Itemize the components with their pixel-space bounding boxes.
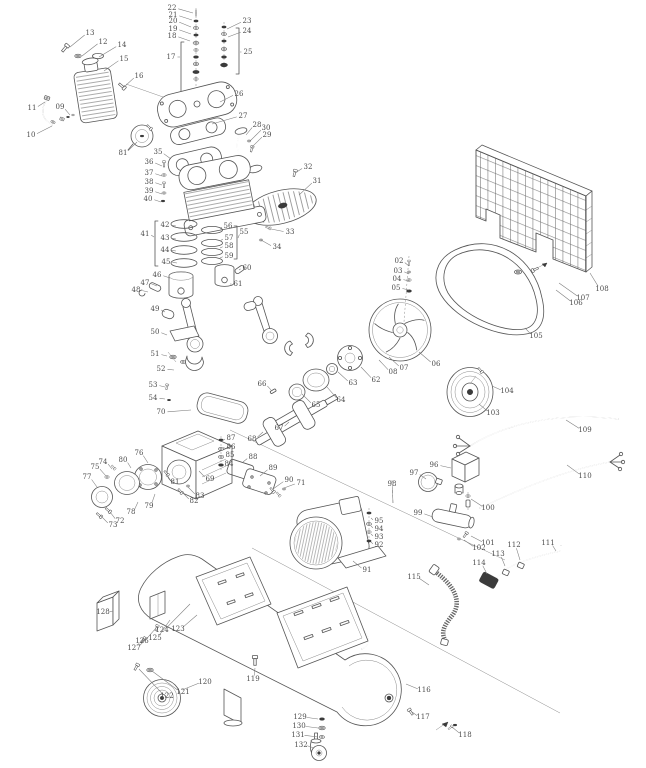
part-number-114: 114: [472, 559, 486, 567]
part-number-50: 50: [151, 328, 160, 336]
part-number-10: 10: [27, 131, 36, 139]
part-number-90: 90: [285, 476, 294, 484]
leader-line-05: [402, 289, 409, 291]
leader-line-77: [92, 480, 97, 488]
part-number-75: 75: [91, 463, 100, 471]
part-number-24: 24: [243, 27, 252, 35]
part-number-03: 03: [394, 267, 403, 275]
pressure-gauge: [419, 473, 443, 492]
leader-line-74: [108, 464, 112, 469]
leader-line-93: [371, 534, 373, 536]
part-number-96: 96: [430, 461, 439, 469]
leader-line-76: [143, 456, 148, 463]
piston-1: [169, 272, 193, 298]
part-number-100: 100: [481, 504, 494, 512]
piston-rings-1: [171, 220, 197, 268]
part-number-78: 78: [127, 508, 136, 516]
part-number-98: 98: [388, 480, 397, 488]
part-number-51: 51: [151, 350, 160, 358]
part-number-97: 97: [410, 469, 419, 477]
part-number-08: 08: [389, 368, 398, 376]
part-number-117: 117: [416, 713, 429, 721]
part-number-13: 13: [86, 29, 95, 37]
grille-screw: [514, 263, 547, 274]
part-number-25: 25: [244, 48, 253, 56]
leader-line-94: [371, 526, 373, 528]
part-number-89: 89: [269, 464, 278, 472]
part-number-76: 76: [135, 449, 144, 457]
leader-line-92: [371, 542, 373, 544]
part-number-02: 02: [395, 257, 404, 265]
part-number-102: 102: [472, 544, 485, 552]
leader-line-116: [406, 684, 418, 689]
part-number-115: 115: [407, 573, 420, 581]
cylinder-block: [173, 152, 267, 236]
leader-line-08: [379, 360, 388, 370]
part-number-88: 88: [249, 453, 258, 461]
shaft-key: [270, 389, 276, 394]
leader-line-115: [420, 579, 429, 585]
exploded-parts-diagram: 0203040506070809101112131415161718192021…: [0, 0, 646, 768]
leader-line-34: [261, 240, 271, 246]
part-number-81: 81: [171, 478, 180, 486]
leader-line-51: [161, 355, 167, 356]
leader-line-44: [172, 250, 177, 251]
part-number-94: 94: [375, 525, 384, 533]
part-number-05: 05: [392, 284, 401, 292]
leader-line-64: [327, 387, 336, 398]
leader-line-62: [361, 367, 371, 378]
leader-line-59: [220, 257, 223, 258]
crank-nut: [167, 399, 171, 401]
leader-line-80: [128, 463, 131, 469]
leader-line-41: [151, 235, 154, 237]
leader-line-63: [338, 372, 348, 381]
leader-line-18: [178, 37, 190, 41]
part-number-84: 84: [225, 460, 234, 468]
leader-line-57: [220, 239, 223, 241]
wrist-pin-1: [148, 282, 161, 293]
leader-line-48: [142, 291, 148, 292]
part-number-56: 56: [224, 222, 233, 230]
part-number-87: 87: [227, 434, 236, 442]
part-number-77: 77: [83, 473, 92, 481]
part-number-63: 63: [349, 379, 358, 387]
leader-line-99: [424, 514, 433, 517]
leader-line-50: [161, 333, 167, 335]
part-number-15: 15: [120, 55, 129, 63]
part-number-45: 45: [162, 258, 171, 266]
gasket-ring-64: [303, 369, 329, 391]
part-number-107: 107: [576, 294, 589, 302]
leader-line-95: [371, 518, 373, 520]
leader-line-70: [168, 410, 192, 412]
part-number-132: 132: [294, 741, 307, 749]
part-number-92: 92: [375, 541, 384, 549]
part-number-127: 127: [127, 644, 140, 652]
v-belt: [436, 244, 544, 335]
connecting-rod-2: [254, 297, 278, 344]
leader-line-75: [100, 469, 106, 476]
leader-line-130: [306, 726, 319, 728]
leader-line-36: [155, 163, 162, 166]
part-number-31: 31: [313, 177, 322, 185]
pressure-switch: [452, 452, 479, 495]
drain-hose: [429, 564, 457, 646]
leader-line-10: [37, 126, 52, 134]
leader-line-109: [566, 420, 579, 428]
part-number-130: 130: [292, 722, 305, 730]
leader-line-15: [104, 61, 118, 71]
part-number-14: 14: [118, 41, 127, 49]
part-number-32: 32: [304, 163, 313, 171]
part-number-36: 36: [145, 158, 154, 166]
part-number-23: 23: [243, 17, 252, 25]
part-number-28: 28: [253, 121, 262, 129]
part-number-66: 66: [258, 380, 267, 388]
leader-line-88: [243, 459, 247, 462]
leader-line-54: [160, 398, 166, 399]
part-number-99: 99: [414, 509, 423, 517]
part-number-41: 41: [141, 230, 150, 238]
part-number-09: 09: [56, 103, 65, 111]
part-number-73: 73: [109, 521, 118, 529]
part-number-80: 80: [119, 456, 128, 464]
leader-line-52: [168, 369, 175, 370]
bracket-17: [181, 42, 184, 92]
leader-line-20: [179, 22, 191, 27]
leader-line-71: [284, 484, 295, 488]
part-number-103: 103: [486, 409, 499, 417]
leader-line-22: [178, 9, 193, 13]
part-number-44: 44: [161, 246, 170, 254]
tank-screws-118: [436, 722, 457, 730]
part-number-69: 69: [206, 475, 215, 483]
part-number-113: 113: [491, 550, 504, 558]
part-number-12: 12: [99, 38, 108, 46]
part-number-57: 57: [225, 234, 234, 242]
leader-line-37: [155, 174, 162, 176]
leader-line-09: [65, 109, 70, 115]
filter-fitting: [118, 82, 127, 90]
part-number-27: 27: [239, 112, 248, 120]
part-number-71: 71: [297, 479, 306, 487]
part-number-91: 91: [363, 566, 372, 574]
breather-cover: [128, 124, 153, 150]
part-number-119: 119: [246, 675, 259, 683]
leader-line-39: [155, 192, 162, 194]
caster: [310, 717, 326, 760]
part-number-59: 59: [225, 252, 234, 260]
part-number-46: 46: [153, 271, 162, 279]
leader-line-45: [173, 262, 178, 263]
part-number-33: 33: [286, 228, 295, 236]
leader-line-16: [124, 78, 134, 87]
leader-line-19: [179, 30, 191, 34]
bearing-cover-79: [115, 472, 140, 495]
crank-bolt: [165, 384, 169, 390]
part-number-34: 34: [273, 243, 282, 251]
fitting-101: [462, 531, 468, 538]
part-number-70: 70: [157, 408, 166, 416]
part-number-54: 54: [149, 394, 158, 402]
leader-line-14: [99, 47, 116, 57]
part-number-112: 112: [507, 541, 520, 549]
part-number-30: 30: [262, 124, 271, 132]
axle-nut: [133, 663, 140, 671]
leader-line-35: [164, 154, 171, 159]
part-number-93: 93: [375, 533, 384, 541]
part-number-131: 131: [291, 731, 304, 739]
part-number-65: 65: [312, 401, 321, 409]
part-number-111: 111: [541, 539, 554, 547]
part-number-105: 105: [529, 332, 542, 340]
bearing-shell-1: [285, 341, 293, 356]
part-number-68: 68: [248, 435, 257, 443]
part-number-11: 11: [28, 104, 37, 112]
part-number-67: 67: [275, 424, 284, 432]
part-number-61: 61: [234, 280, 243, 288]
belt-guard-grille: [476, 145, 592, 272]
part-number-19: 19: [169, 25, 178, 33]
part-number-95: 95: [375, 517, 384, 525]
leader-line-53: [159, 386, 165, 387]
part-number-58: 58: [225, 242, 234, 250]
part-number-55: 55: [240, 228, 249, 236]
part-number-17: 17: [167, 53, 176, 61]
part-number-26: 26: [235, 90, 244, 98]
part-number-104: 104: [500, 387, 514, 395]
part-number-64: 64: [337, 396, 346, 404]
piston-2: [215, 265, 234, 287]
valve-stack-left: [193, 8, 200, 86]
parts-diagram-canvas: 0203040506070809101112131415161718192021…: [0, 0, 646, 768]
flange-62: [338, 346, 363, 371]
part-number-85: 85: [226, 451, 235, 459]
filter-washer: [75, 54, 81, 58]
valve-stack-right: [220, 22, 227, 70]
leader-line-06: [419, 352, 431, 362]
leader-line-58: [220, 247, 223, 248]
part-number-42: 42: [161, 221, 170, 229]
rod-bushing-2: [243, 301, 257, 312]
part-number-74: 74: [99, 458, 108, 466]
part-number-16: 16: [135, 72, 144, 80]
part-number-83: 83: [196, 492, 205, 500]
part-number-21: 21: [169, 11, 178, 19]
wire-harness-109: [453, 417, 618, 456]
part-number-122: 122: [160, 692, 173, 700]
filter-cap: [93, 53, 104, 58]
part-number-47: 47: [141, 279, 150, 287]
air-filter-assembly: [60, 43, 126, 123]
flywheel: [369, 299, 431, 361]
part-number-129: 129: [293, 713, 306, 721]
leader-line-38: [155, 183, 162, 185]
check-valve: [479, 571, 499, 589]
motor-bolts: [366, 508, 371, 546]
leader-line-21: [179, 16, 192, 20]
fitting-100: [466, 492, 470, 510]
part-number-53: 53: [149, 381, 158, 389]
part-number-39: 39: [145, 187, 154, 195]
part-number-60: 60: [243, 264, 252, 272]
electric-motor: [290, 496, 386, 569]
part-number-120: 120: [198, 678, 211, 686]
leader-line-28: [246, 127, 252, 135]
part-number-22: 22: [168, 4, 177, 12]
wire-harness-110: [480, 452, 625, 508]
leader-line-81: [128, 142, 137, 151]
part-number-125: 125: [148, 634, 161, 642]
leader-line-40: [154, 200, 161, 202]
part-number-86: 86: [227, 443, 236, 451]
seal-63: [327, 364, 338, 375]
leader-line-73: [101, 516, 108, 523]
part-number-81: 81: [119, 149, 128, 157]
part-number-52: 52: [157, 365, 166, 373]
part-number-18: 18: [168, 32, 177, 40]
part-number-121: 121: [176, 688, 189, 696]
leader-line-112: [516, 548, 520, 560]
bearing-65: [289, 384, 305, 400]
leader-line-33: [271, 229, 284, 232]
part-number-128: 128: [96, 608, 109, 616]
part-number-43: 43: [161, 234, 170, 242]
part-number-48: 48: [132, 286, 141, 294]
part-number-62: 62: [372, 376, 381, 384]
part-number-108: 108: [595, 285, 608, 293]
bearing-cup-77: [92, 487, 113, 508]
leader-line-72: [110, 512, 115, 519]
leader-line-29: [252, 137, 262, 147]
part-number-110: 110: [578, 472, 591, 480]
part-number-29: 29: [263, 131, 272, 139]
rod-bushing-1: [161, 308, 175, 320]
cylinder-bolts: [161, 161, 166, 202]
leader-line-98: [392, 488, 393, 504]
part-number-123: 123: [171, 625, 184, 633]
part-number-109: 109: [578, 426, 591, 434]
bracket-41: [155, 221, 158, 266]
base-gasket: [195, 391, 250, 425]
leader-line-13: [70, 35, 85, 47]
part-number-06: 06: [432, 360, 441, 368]
part-number-124: 124: [155, 626, 169, 634]
part-number-37: 37: [145, 169, 154, 177]
leader-line-66: [267, 386, 271, 390]
cover-stud: [265, 225, 271, 230]
clamp-parts: [168, 352, 186, 363]
bracket-55: [234, 226, 237, 259]
part-number-07: 07: [400, 364, 409, 372]
bracket-25: [236, 28, 239, 74]
part-number-40: 40: [144, 195, 153, 203]
part-number-38: 38: [145, 178, 154, 186]
part-number-118: 118: [458, 731, 471, 739]
part-number-79: 79: [145, 502, 154, 510]
tank-bolt-117: [407, 708, 414, 716]
filter-bolt: [60, 43, 69, 53]
head-cover-bolt: [292, 169, 298, 177]
fitting-102: [457, 538, 461, 540]
leader-line-96: [440, 466, 451, 468]
part-number-35: 35: [154, 148, 163, 156]
part-number-04: 04: [393, 275, 402, 283]
leader-line-129: [307, 717, 319, 719]
bearing-shell-2: [306, 333, 314, 348]
part-number-116: 116: [417, 686, 431, 694]
leader-line-113: [501, 557, 505, 566]
part-number-49: 49: [151, 305, 160, 313]
